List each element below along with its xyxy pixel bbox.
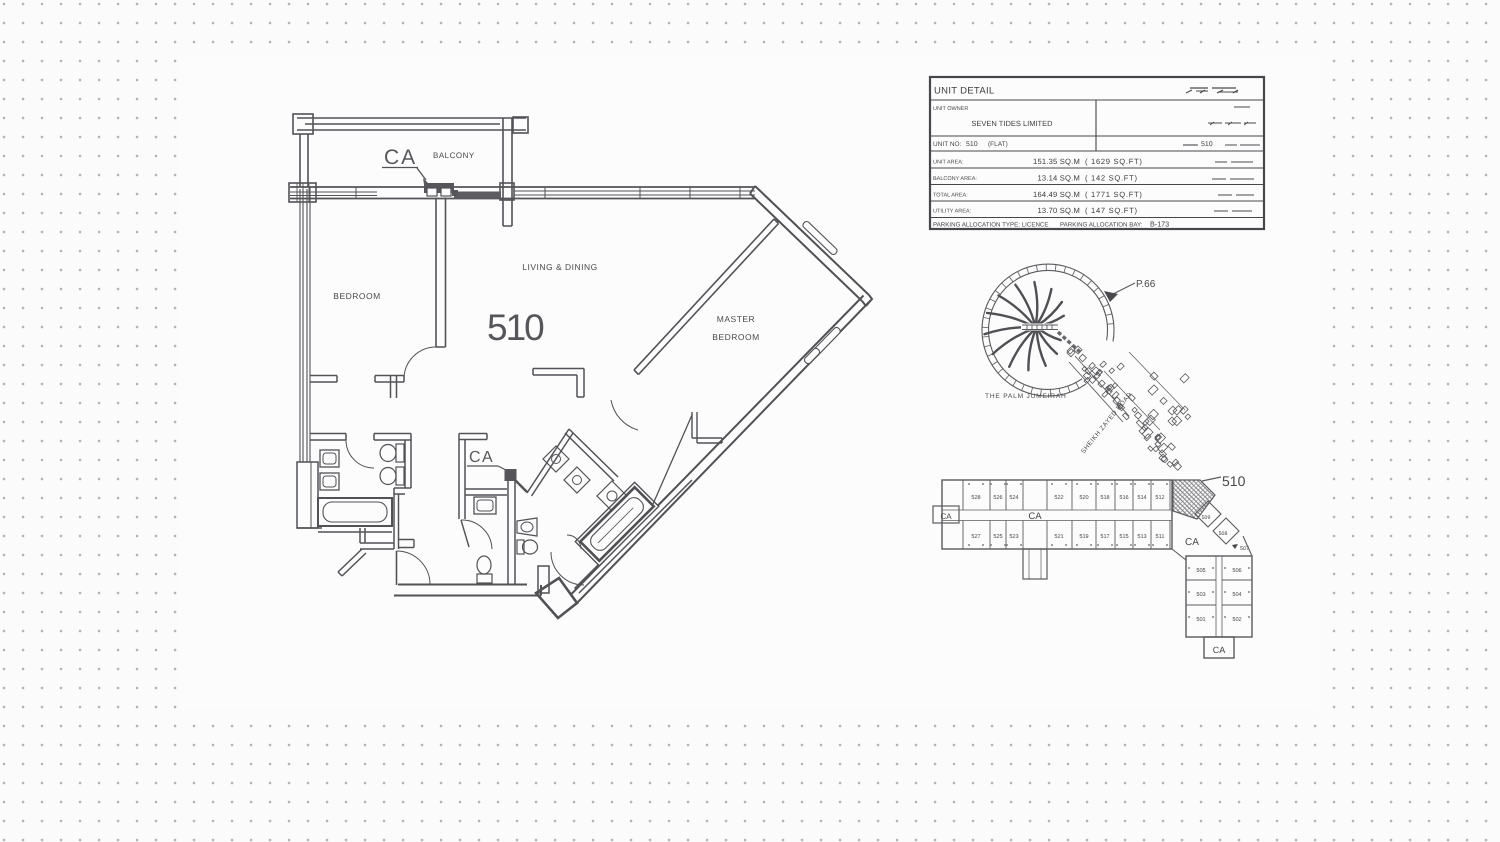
svg-text:13.70 SQ.M: 13.70 SQ.M [1037, 206, 1080, 215]
svg-text:516: 516 [1119, 495, 1128, 501]
svg-text:521: 521 [1054, 534, 1063, 540]
svg-text:P.66: P.66 [1136, 279, 1156, 290]
svg-text:B-173: B-173 [1150, 220, 1169, 229]
svg-text:LIVING & DINING: LIVING & DINING [522, 262, 598, 272]
svg-text:504: 504 [1232, 592, 1241, 598]
svg-text:BALCONY AREA:: BALCONY AREA: [933, 176, 977, 182]
svg-text:PARKING ALLOCATION TYPE: LICE: PARKING ALLOCATION TYPE: LICENCE [933, 222, 1049, 229]
svg-text:MASTER: MASTER [717, 314, 755, 324]
svg-text:CA: CA [384, 146, 417, 169]
svg-text:UTILITY AREA:: UTILITY AREA: [933, 209, 972, 215]
svg-text:UNIT OWNER: UNIT OWNER [933, 106, 968, 112]
svg-text:510: 510 [1222, 473, 1246, 489]
svg-text:506: 506 [1232, 568, 1241, 574]
svg-text:509: 509 [1202, 515, 1211, 521]
svg-text:UNIT DETAIL: UNIT DETAIL [934, 86, 995, 97]
svg-text:TOTAL AREA:: TOTAL AREA: [933, 193, 968, 199]
svg-text:( 147 SQ.FT): ( 147 SQ.FT) [1085, 206, 1138, 215]
svg-text:502: 502 [1232, 617, 1241, 623]
svg-text:BALCONY: BALCONY [433, 151, 475, 160]
svg-text:519: 519 [1079, 534, 1088, 540]
svg-text:503: 503 [1196, 592, 1205, 598]
svg-text:518: 518 [1100, 495, 1109, 501]
svg-text:526: 526 [993, 495, 1002, 501]
svg-text:BEDROOM: BEDROOM [712, 332, 759, 342]
svg-text:UNIT AREA:: UNIT AREA: [933, 160, 964, 166]
svg-text:151.35 SQ.M: 151.35 SQ.M [1033, 157, 1080, 166]
svg-text:( 1629 SQ.FT): ( 1629 SQ.FT) [1085, 157, 1143, 166]
svg-text:( 142 SQ.FT): ( 142 SQ.FT) [1085, 174, 1138, 183]
svg-text:CA: CA [940, 512, 952, 521]
svg-text:UNIT NO:: UNIT NO: [933, 141, 962, 148]
svg-text:508: 508 [1219, 531, 1228, 537]
svg-text:CA: CA [1028, 511, 1042, 522]
svg-text:513: 513 [1137, 534, 1146, 540]
svg-text:13.14 SQ.M: 13.14 SQ.M [1037, 174, 1080, 183]
svg-text:CA: CA [1185, 537, 1199, 548]
svg-text:CA: CA [469, 449, 494, 466]
svg-text:523: 523 [1009, 534, 1018, 540]
svg-text:510: 510 [966, 141, 978, 148]
svg-text:THE PALM JUMEIRAH: THE PALM JUMEIRAH [985, 393, 1067, 400]
svg-text:(FLAT): (FLAT) [988, 141, 1008, 148]
svg-text:164.49 SQ.M: 164.49 SQ.M [1033, 190, 1080, 199]
svg-text:514: 514 [1137, 495, 1146, 501]
svg-text:528: 528 [971, 495, 980, 501]
svg-text:BEDROOM: BEDROOM [333, 291, 380, 301]
svg-text:512: 512 [1155, 495, 1164, 501]
svg-text:511: 511 [1156, 534, 1165, 540]
svg-text:PARKING ALLOCATION BAY:: PARKING ALLOCATION BAY: [1060, 222, 1143, 229]
svg-text:510: 510 [487, 307, 544, 348]
svg-text:524: 524 [1009, 495, 1018, 501]
svg-text:517: 517 [1100, 534, 1109, 540]
svg-text:( 1771 SQ.FT): ( 1771 SQ.FT) [1085, 190, 1143, 199]
svg-text:505: 505 [1196, 568, 1205, 574]
svg-text:501: 501 [1196, 617, 1205, 623]
svg-text:522: 522 [1054, 495, 1063, 501]
svg-text:527: 527 [971, 534, 980, 540]
svg-text:CA: CA [1213, 645, 1226, 655]
svg-text:510: 510 [1201, 141, 1213, 148]
svg-text:525: 525 [993, 534, 1002, 540]
svg-text:520: 520 [1079, 495, 1088, 501]
svg-text:515: 515 [1119, 534, 1128, 540]
svg-text:SEVEN TIDES LIMITED: SEVEN TIDES LIMITED [971, 119, 1053, 128]
